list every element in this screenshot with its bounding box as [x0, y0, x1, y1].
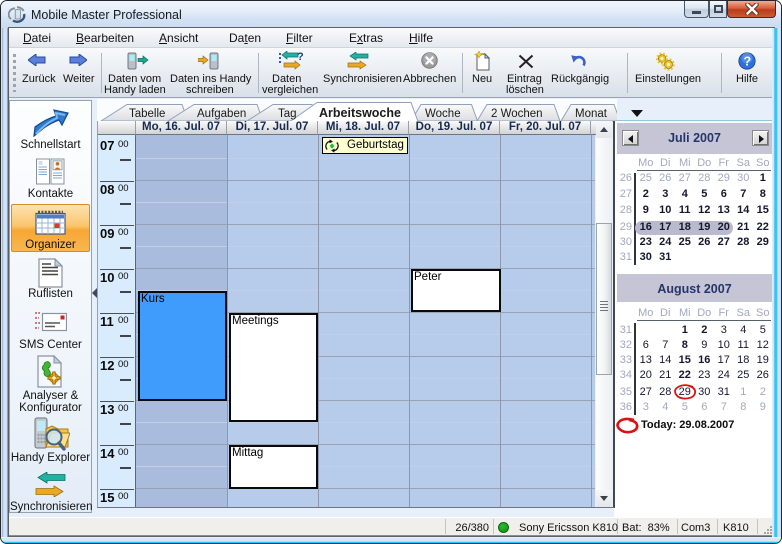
svg-text:Aufgaben: Aufgaben: [197, 108, 246, 120]
svg-text:?: ?: [744, 55, 752, 69]
svg-text:Arbeitswoche: Arbeitswoche: [319, 106, 401, 120]
svg-text:Tag: Tag: [278, 108, 297, 120]
svg-text:2 Wochen: 2 Wochen: [491, 108, 543, 120]
svg-text:Woche: Woche: [425, 108, 461, 120]
svg-text:Tabelle: Tabelle: [129, 108, 165, 120]
svg-text:?: ?: [297, 51, 304, 63]
svg-text:Monat: Monat: [575, 108, 608, 120]
